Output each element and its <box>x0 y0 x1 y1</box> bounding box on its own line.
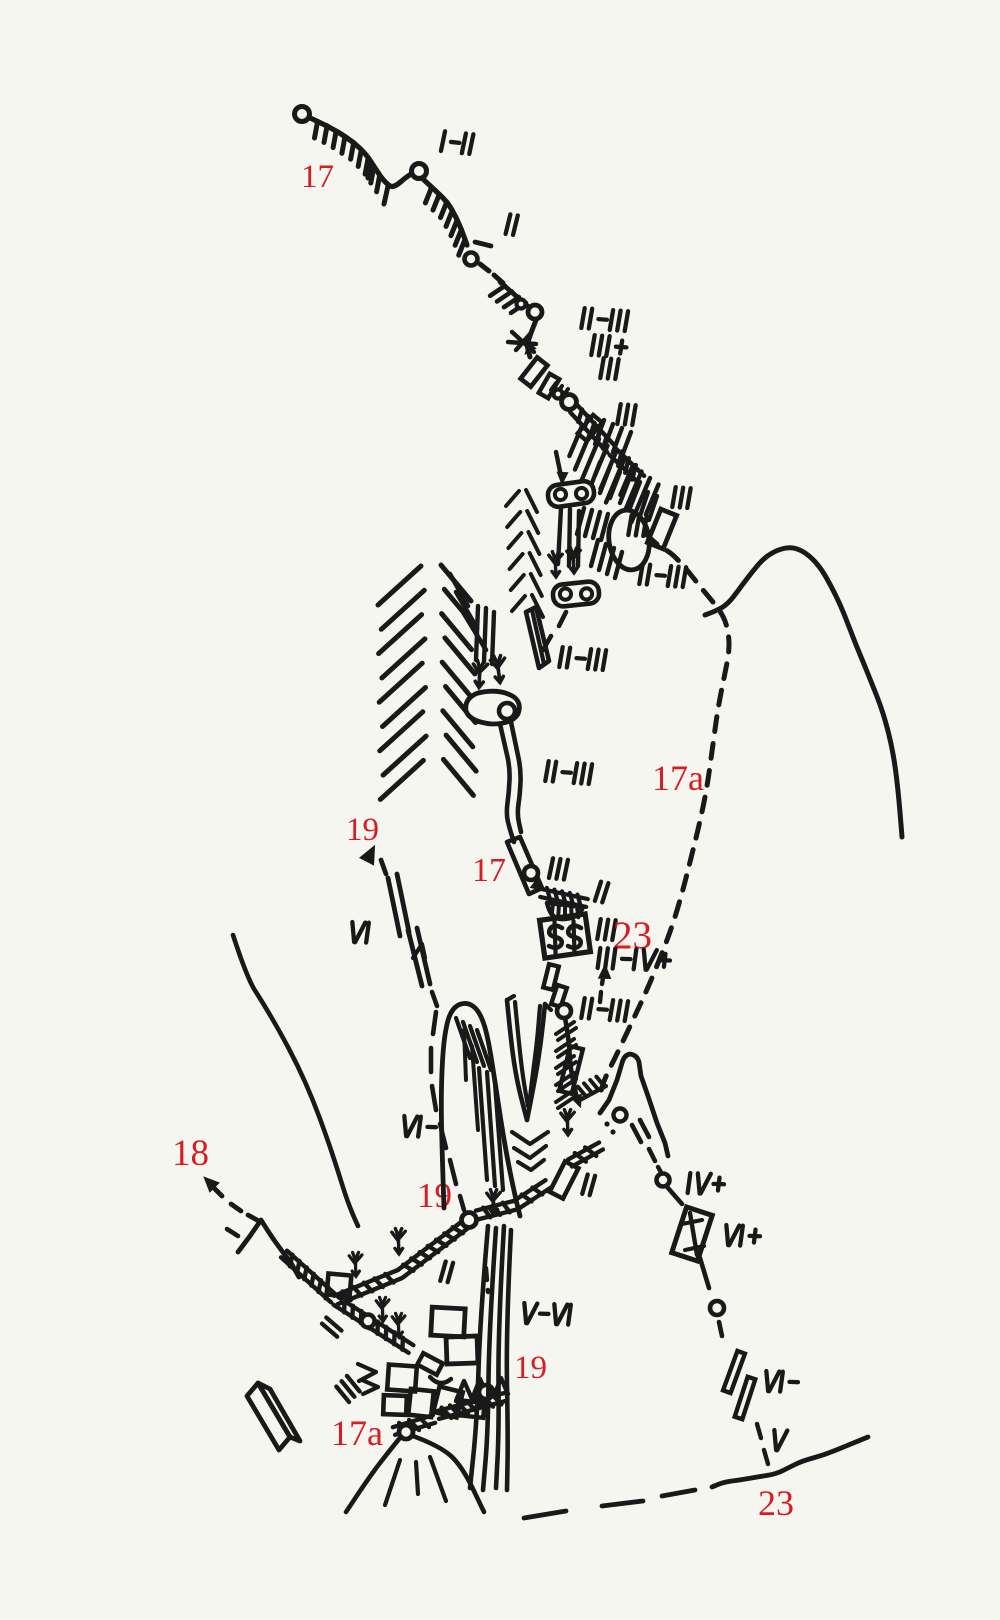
svg-text:17a: 17a <box>652 758 704 798</box>
svg-text:19: 19 <box>417 1176 452 1215</box>
svg-text:17: 17 <box>472 852 506 889</box>
svg-text:19: 19 <box>346 812 379 848</box>
svg-text:17: 17 <box>301 159 334 195</box>
svg-text:18: 18 <box>172 1133 209 1174</box>
svg-text:19: 19 <box>514 1350 547 1386</box>
svg-text:23: 23 <box>613 914 652 957</box>
svg-text:17a: 17a <box>331 1413 383 1453</box>
svg-text:23: 23 <box>758 1483 794 1523</box>
